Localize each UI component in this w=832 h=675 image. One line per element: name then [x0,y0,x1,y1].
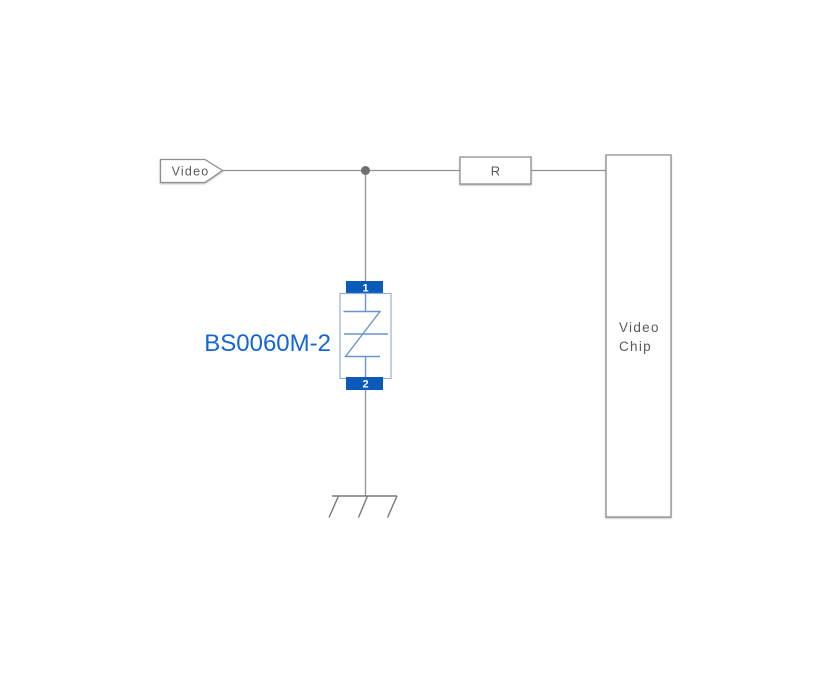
resistor-label: R [491,164,500,179]
schematic-canvas: Video R Video Chip 1 2 BS0060M-2 [0,0,832,675]
ground-symbol [329,496,397,518]
part-number-label: BS0060M-2 [204,330,331,357]
video-port-label: Video [172,165,210,179]
tvs-pin2-number: 2 [362,379,368,391]
circuit-diagram: Video R Video Chip 1 2 BS0060M-2 [0,0,832,675]
ground-stroke-2 [359,496,368,518]
ground-stroke-1 [329,496,339,518]
ground-stroke-3 [388,496,398,518]
junction-dot [361,166,370,175]
video-chip-label-line1: Video [619,320,660,335]
tvs-pin1-number: 1 [362,283,368,295]
video-chip-box [606,155,671,517]
video-chip-label-line2: Chip [619,339,652,354]
